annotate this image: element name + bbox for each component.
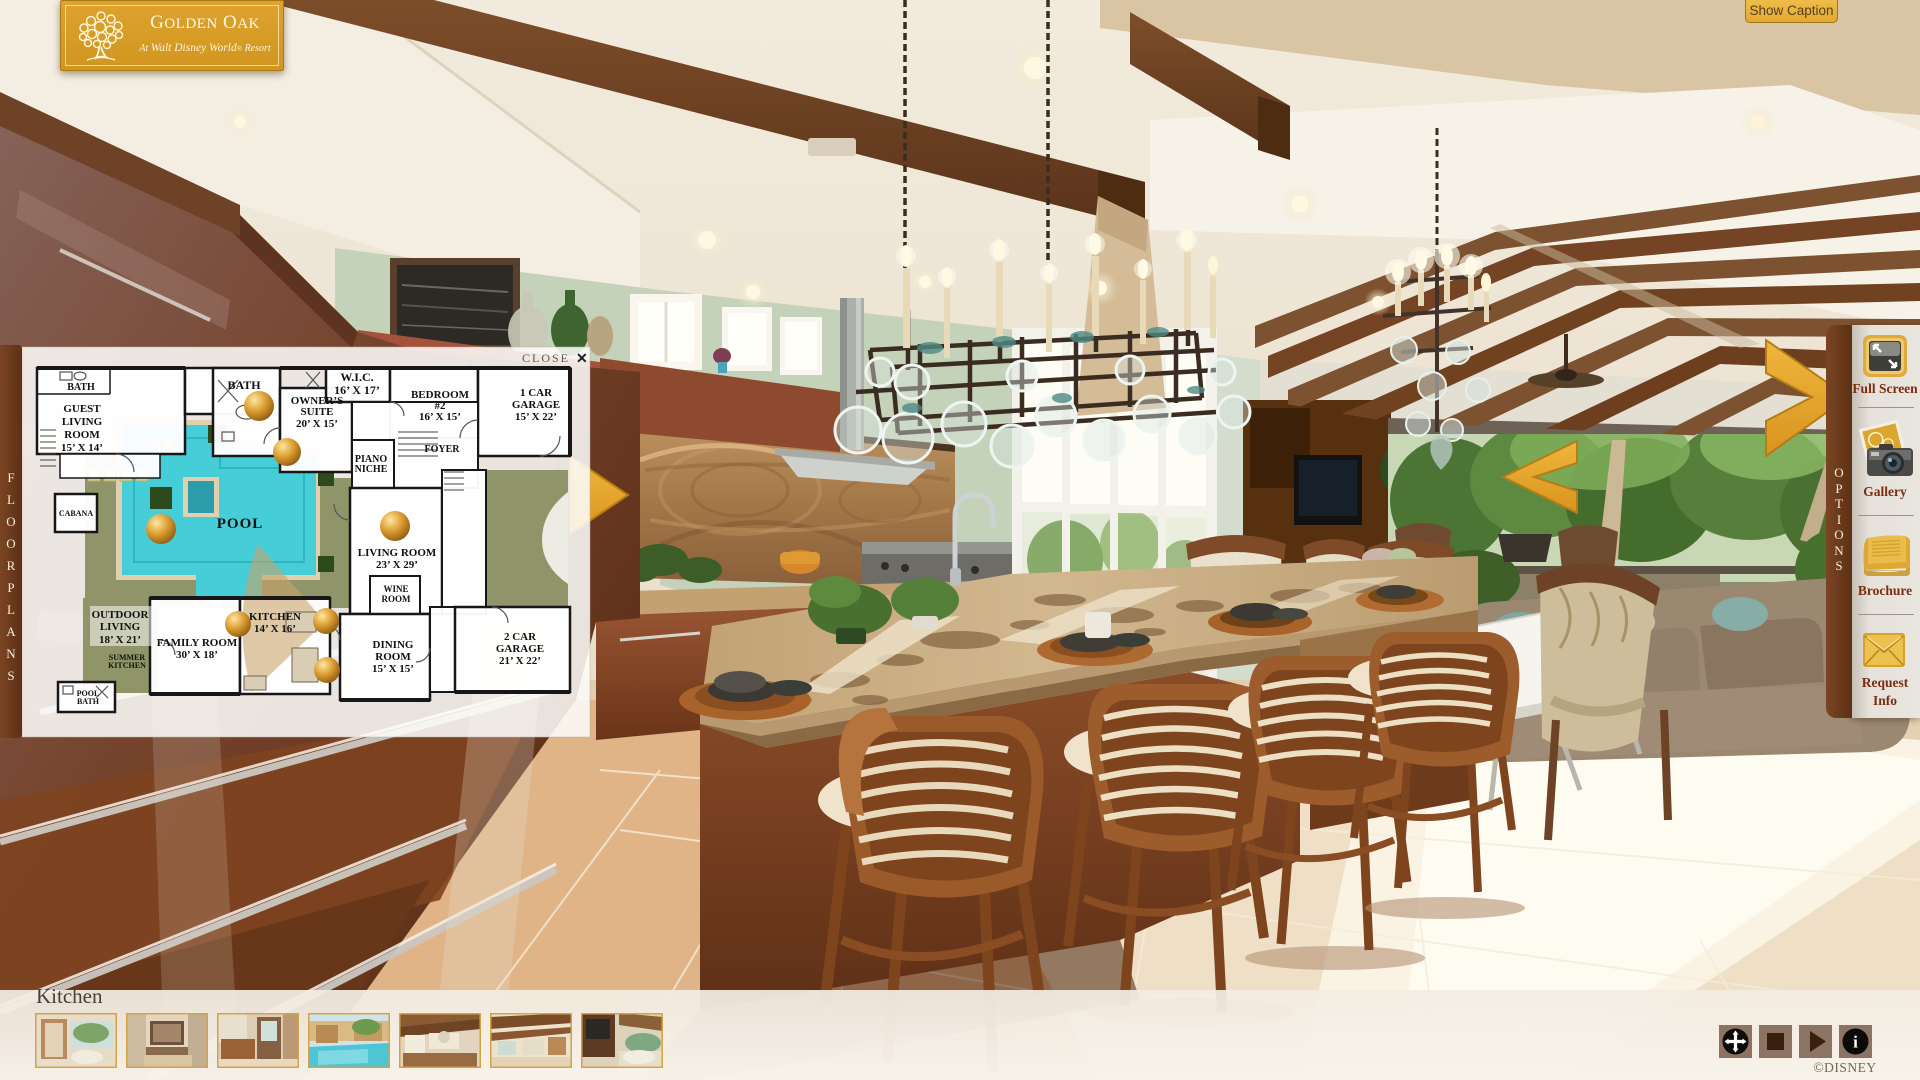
svg-text:15’ X 14’: 15’ X 14’ [61,442,103,454]
svg-text:WINE: WINE [383,584,408,594]
svg-text:LIVING: LIVING [62,416,103,428]
svg-text:15’ X 15’: 15’ X 15’ [372,663,414,675]
svg-text:POOL: POOL [217,516,264,532]
svg-text:23’ X 29’: 23’ X 29’ [376,559,418,571]
svg-text:18’ X 21’: 18’ X 21’ [99,634,141,646]
svg-text:KITCHEN: KITCHEN [249,611,301,623]
svg-text:16’ X 15’: 16’ X 15’ [419,411,461,423]
svg-text:LIVING ROOM: LIVING ROOM [358,547,437,559]
svg-text:✕: ✕ [576,352,588,367]
svg-text:KITCHEN: KITCHEN [108,661,146,670]
svg-text:ROOM: ROOM [382,594,412,604]
svg-text:W.I.C.: W.I.C. [340,370,373,384]
svg-text:2 CAR: 2 CAR [504,631,537,643]
svg-text:SUITE: SUITE [300,406,333,418]
svg-text:GARAGE: GARAGE [512,399,560,411]
svg-text:20’ X 15’: 20’ X 15’ [296,418,338,430]
svg-text:CLOSE: CLOSE [522,351,570,365]
svg-text:OUTDOOR: OUTDOOR [92,609,150,621]
svg-text:DINING: DINING [373,639,414,651]
svg-text:i: i [1853,1033,1858,1052]
svg-text:LIVING: LIVING [100,621,141,633]
svg-text:BATH: BATH [67,382,95,393]
svg-text:1 CAR: 1 CAR [520,387,553,399]
svg-text:GARAGE: GARAGE [496,643,544,655]
svg-text:GUEST: GUEST [63,403,101,415]
svg-text:NICHE: NICHE [355,464,388,475]
svg-text:14’ X 16’: 14’ X 16’ [254,623,296,635]
svg-text:21’ X 22’: 21’ X 22’ [499,655,541,667]
svg-text:FOYER: FOYER [425,444,461,455]
svg-text:ROOM: ROOM [64,429,100,441]
svg-text:ROOM: ROOM [375,651,411,663]
svg-text:CABANA: CABANA [59,509,93,518]
svg-text:FAMILY ROOM: FAMILY ROOM [157,637,238,649]
svg-text:15’ X 22’: 15’ X 22’ [515,411,557,423]
svg-text:BATH: BATH [227,378,261,392]
svg-text:30’ X 18’: 30’ X 18’ [176,649,218,661]
svg-text:BATH: BATH [77,697,100,706]
